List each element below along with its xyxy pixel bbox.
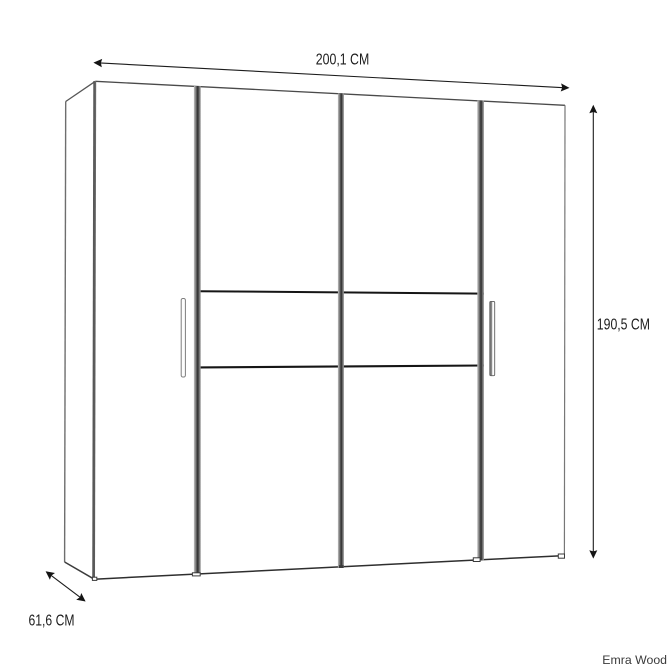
svg-text:61,6 CM: 61,6 CM xyxy=(29,613,75,630)
svg-text:200,1 CM: 200,1 CM xyxy=(316,51,370,68)
svg-text:190,5 CM: 190,5 CM xyxy=(597,316,650,333)
svg-text:Emra Wood: Emra Wood xyxy=(602,653,667,667)
